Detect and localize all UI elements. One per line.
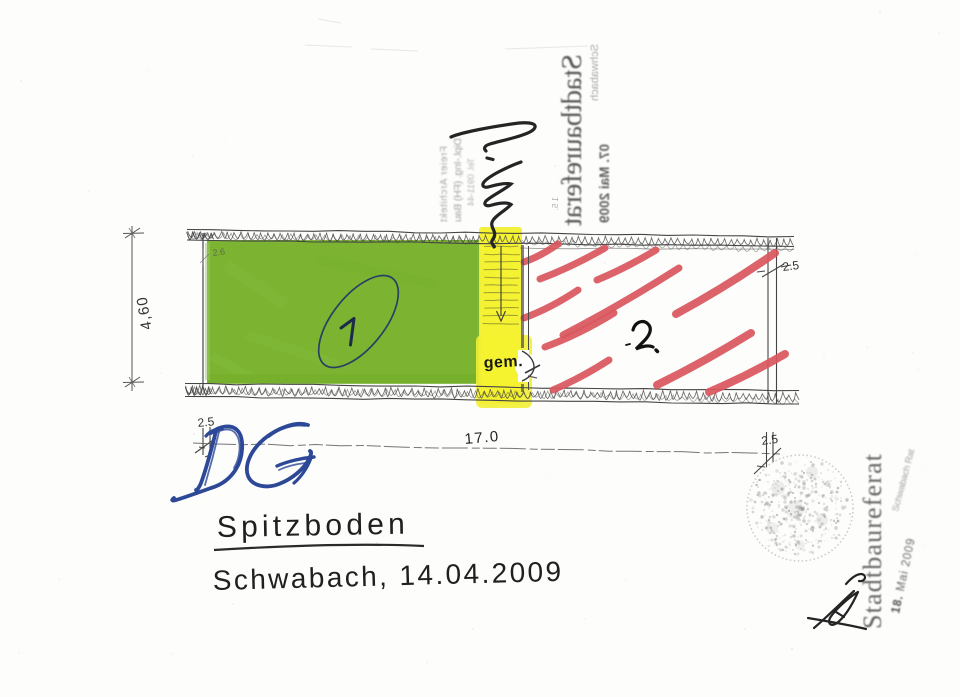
svg-text:Dipl.-Ing. (FH) Bau: Dipl.-Ing. (FH) Bau: [452, 138, 464, 222]
svg-text:2.5: 2.5: [760, 432, 779, 448]
svg-text:Spitzboden: Spitzboden: [217, 508, 410, 544]
svg-text:Tel. 0911-44: Tel. 0911-44: [466, 158, 476, 206]
svg-text:1 5.: 1 5.: [551, 197, 560, 210]
svg-text:Freier Architekt: Freier Architekt: [439, 146, 450, 222]
svg-text:2.5: 2.5: [782, 258, 801, 274]
svg-text:Stadtbaureferat: Stadtbaureferat: [858, 453, 887, 629]
svg-text:Schwabach: Schwabach: [589, 44, 601, 101]
svg-text:gem.: gem.: [483, 353, 523, 372]
svg-text:17.0: 17.0: [464, 428, 501, 448]
svg-text:2.6: 2.6: [212, 246, 226, 258]
svg-text:2.5: 2.5: [197, 414, 215, 430]
svg-text:Stadtbaureferat: Stadtbaureferat: [556, 54, 588, 226]
svg-text:07. Mai 2009: 07. Mai 2009: [597, 144, 612, 223]
